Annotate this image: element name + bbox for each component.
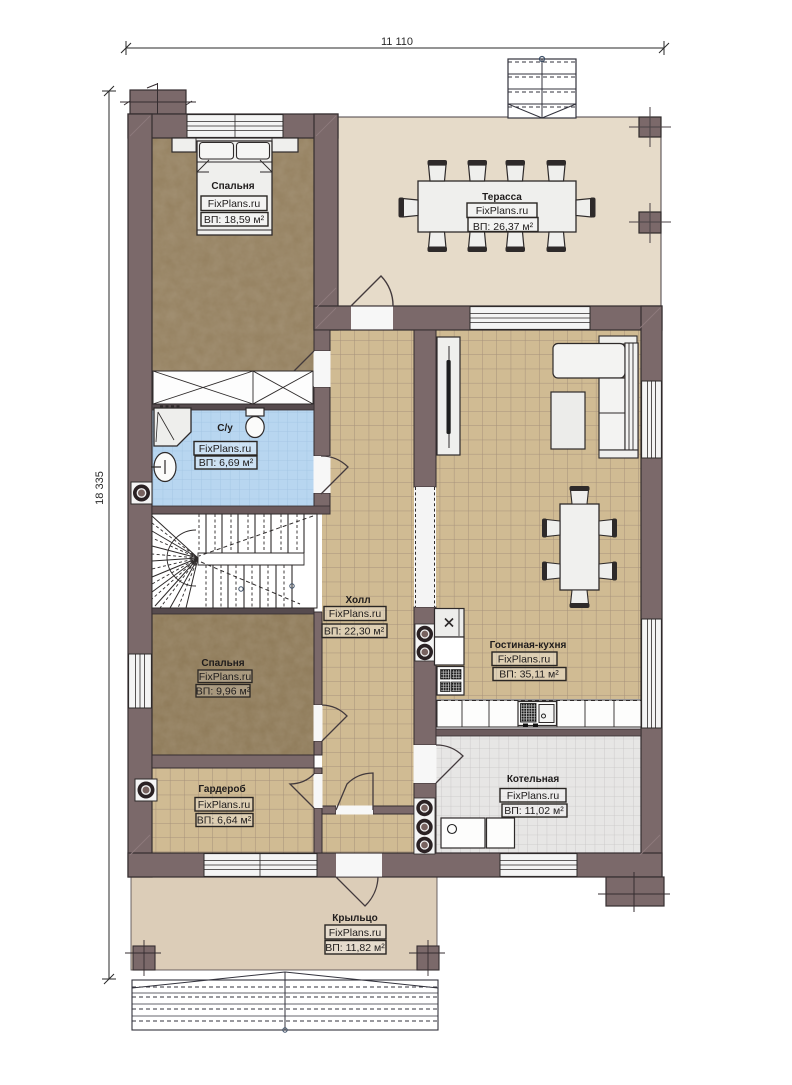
svg-text:Спальня: Спальня (201, 658, 244, 669)
svg-text:FixPlans.ru: FixPlans.ru (507, 790, 560, 802)
svg-text:FixPlans.ru: FixPlans.ru (476, 205, 529, 217)
svg-text:ВП: 9,96 м²: ВП: 9,96 м² (196, 686, 251, 698)
svg-text:Котельная: Котельная (507, 774, 560, 785)
svg-text:ВП: 18,59 м²: ВП: 18,59 м² (204, 214, 265, 226)
svg-text:Крыльцо: Крыльцо (332, 913, 378, 924)
svg-text:Терасса: Терасса (482, 192, 522, 203)
svg-text:FixPlans.ru: FixPlans.ru (198, 799, 251, 811)
svg-text:ВП: 26,37 м²: ВП: 26,37 м² (473, 221, 534, 233)
svg-text:Холл: Холл (345, 595, 370, 606)
svg-text:ВП: 6,69 м²: ВП: 6,69 м² (199, 457, 254, 469)
svg-text:ВП: 6,64 м²: ВП: 6,64 м² (197, 815, 252, 827)
svg-text:FixPlans.ru: FixPlans.ru (329, 608, 382, 620)
svg-text:ВП: 11,02 м²: ВП: 11,02 м² (504, 805, 564, 817)
svg-text:ВП: 22,30 м²: ВП: 22,30 м² (324, 626, 385, 638)
svg-text:FixPlans.ru: FixPlans.ru (208, 198, 261, 210)
svg-text:ВП: 11,82 м²: ВП: 11,82 м² (325, 942, 385, 954)
svg-text:FixPlans.ru: FixPlans.ru (329, 927, 382, 939)
svg-text:FixPlans.ru: FixPlans.ru (199, 443, 252, 455)
svg-text:FixPlans.ru: FixPlans.ru (199, 671, 252, 683)
svg-text:11 110: 11 110 (381, 36, 413, 48)
svg-text:18 335: 18 335 (94, 471, 106, 505)
svg-text:ВП: 35,11 м²: ВП: 35,11 м² (499, 669, 559, 681)
svg-text:FixPlans.ru: FixPlans.ru (498, 654, 551, 666)
svg-text:Гостиная-кухня: Гостиная-кухня (490, 640, 567, 651)
svg-text:Спальня: Спальня (211, 181, 254, 192)
svg-text:Гардероб: Гардероб (198, 783, 245, 795)
svg-text:С/у: С/у (217, 423, 233, 434)
